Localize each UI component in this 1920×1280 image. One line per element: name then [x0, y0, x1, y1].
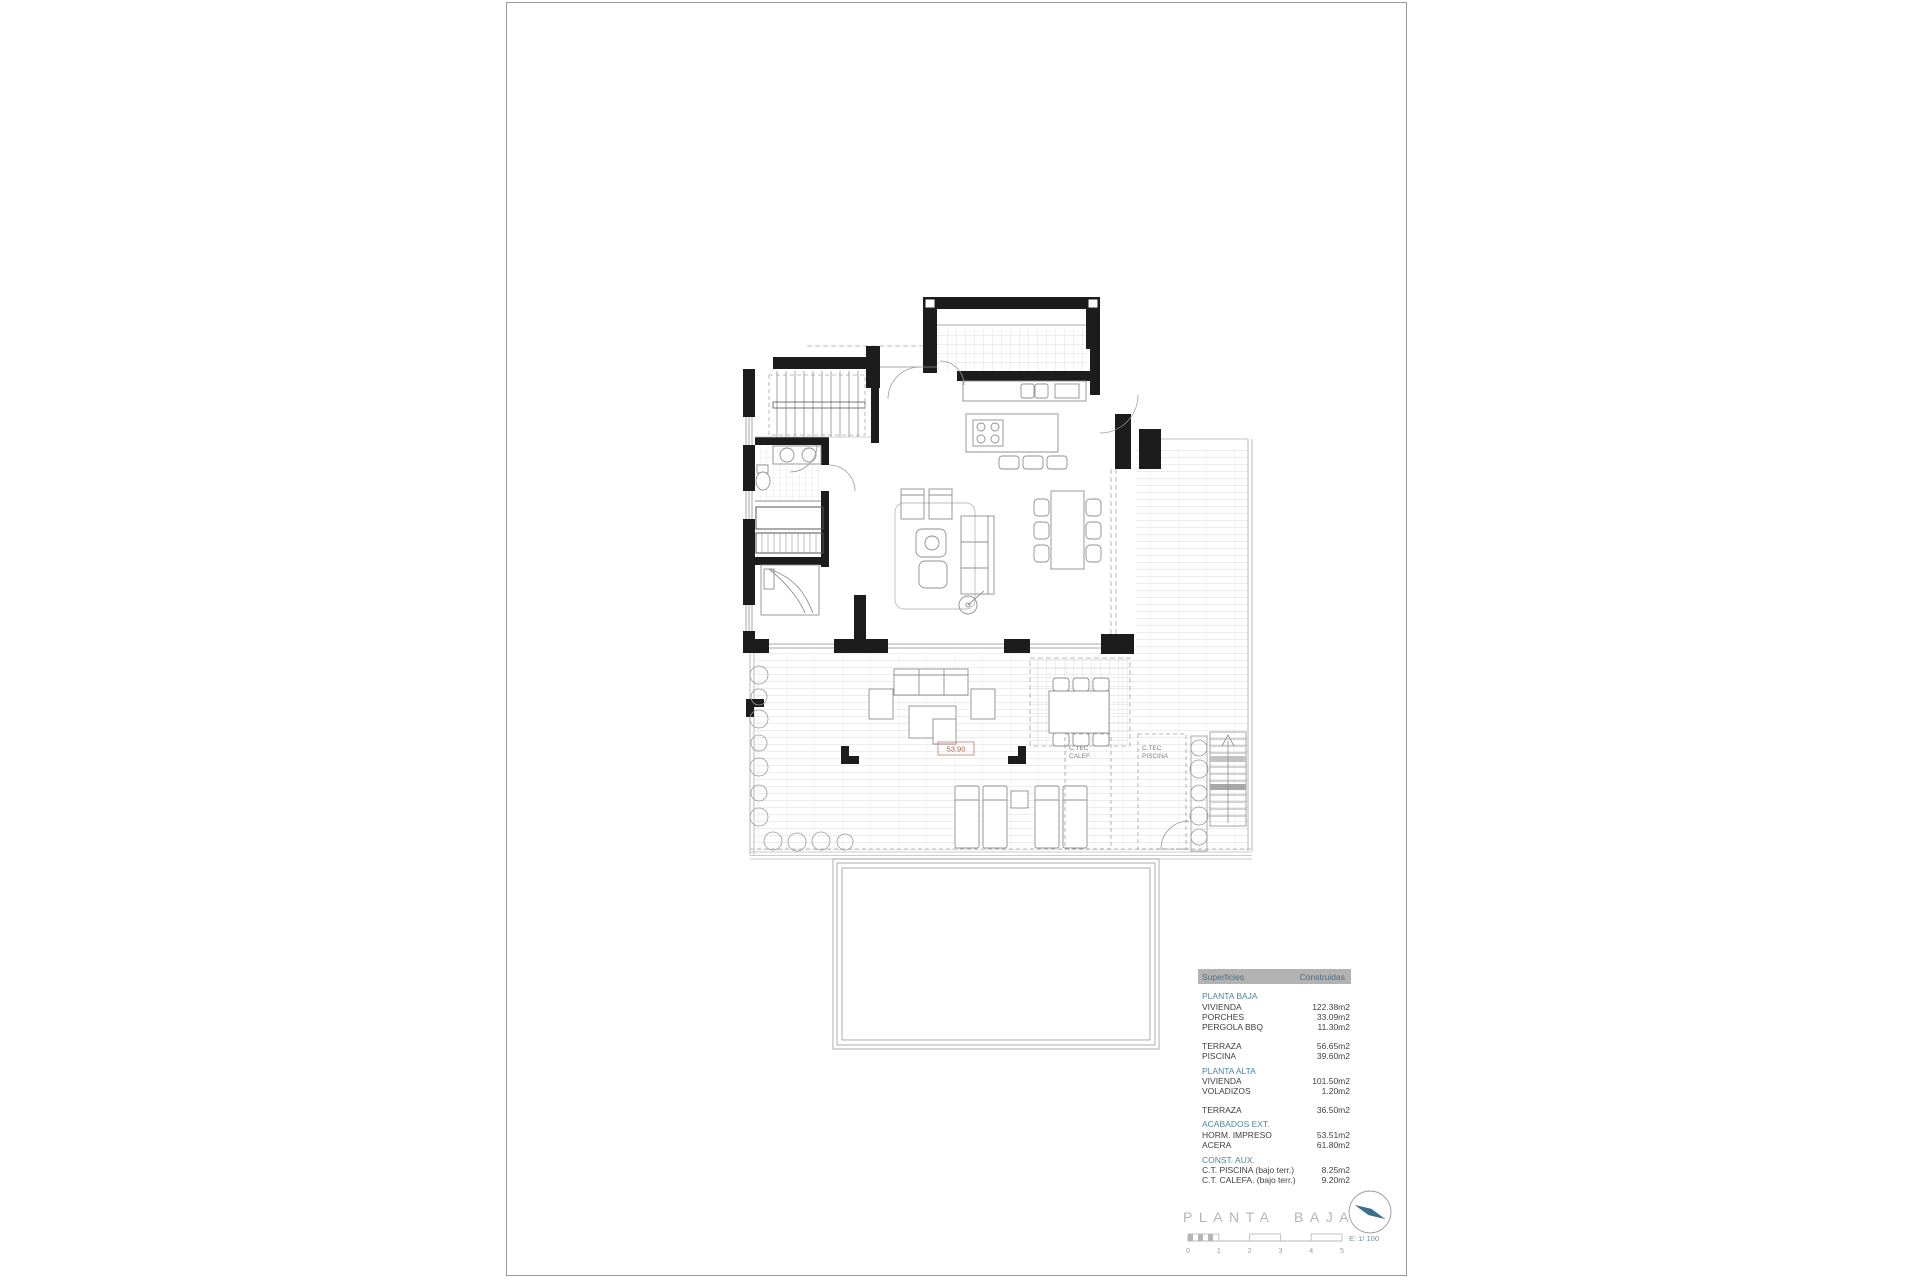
ct-piscina-label: C.TEC: [1142, 745, 1162, 752]
side-table: [933, 719, 956, 744]
pergola-dining: [1049, 678, 1109, 746]
table-row: TERRAZA36.50m2: [1198, 1105, 1351, 1115]
porch-area: [937, 325, 1086, 371]
table-row: PERGOLA BBQ11.30m2: [1198, 1022, 1351, 1032]
table-row: HORM. IMPRESO53.51m2: [1198, 1130, 1351, 1140]
table-row: VOLADIZOS1.20m2: [1198, 1086, 1351, 1096]
sink-icon: [802, 448, 816, 462]
chair-icon: [1086, 522, 1101, 539]
table-row: C.T. PISCINA (bajo terr.)8.25m2: [1198, 1165, 1351, 1175]
overhang-dashed-lines: [807, 346, 1116, 634]
staircase: [755, 371, 871, 437]
svg-text:2: 2: [1248, 1248, 1252, 1255]
chair-icon: [1034, 499, 1049, 516]
header-construidas: Construidas: [1300, 972, 1345, 982]
chair-icon: [1073, 678, 1089, 691]
chair-icon: [1093, 678, 1109, 691]
table-section: CONST. AUX.: [1198, 1155, 1351, 1166]
pool: [833, 859, 1159, 1049]
outdoor-chair-icon: [971, 689, 995, 719]
scale-bar: 0 1 2 3 4 5 E: 1/ 100: [1179, 1227, 1399, 1259]
svg-text:0: 0: [1186, 1248, 1190, 1255]
table-row: PISCINA39.60m2: [1198, 1051, 1351, 1061]
coffee-table: [916, 529, 946, 557]
areas-table-header: Superficies Construidas: [1198, 969, 1351, 984]
scale-tick-labels: 0 1 2 3 4 5: [1186, 1248, 1344, 1255]
svg-text:53.90: 53.90: [947, 745, 966, 754]
svg-text:1: 1: [1217, 1248, 1221, 1255]
chair-icon: [1034, 545, 1049, 562]
chair-icon: [1034, 522, 1049, 539]
armchair-icon: [901, 489, 924, 519]
table-section: PLANTA ALTA: [1198, 1066, 1351, 1077]
side-table: [1011, 791, 1028, 808]
table-row: TERRAZA56.65m2: [1198, 1041, 1351, 1051]
chair-icon: [1093, 733, 1109, 746]
table-row: VIVIENDA101.50m2: [1198, 1076, 1351, 1086]
living-room: [895, 489, 994, 614]
kitchen: [963, 381, 1086, 401]
stool-icon: [999, 456, 1019, 469]
kitchen-island: [966, 414, 1067, 469]
header-superficies: Superficies: [1202, 972, 1244, 982]
svg-text:CALEF.: CALEF.: [1069, 753, 1091, 760]
ct-calef-label: C.TEC: [1069, 745, 1089, 752]
entry-door-arc: [888, 367, 920, 399]
toilet-icon: [756, 472, 770, 490]
dining-table: [1051, 491, 1084, 569]
chair-icon: [1053, 733, 1069, 746]
svg-text:4: 4: [1309, 1248, 1313, 1255]
svg-text:PISCINA: PISCINA: [1142, 753, 1169, 760]
bbq-table: [1049, 691, 1109, 733]
svg-text:3: 3: [1278, 1248, 1282, 1255]
bathroom: [755, 445, 821, 501]
sun-lounger-icon: [955, 786, 979, 848]
areas-table: Superficies Construidas PLANTA BAJA VIVI…: [1198, 969, 1351, 1186]
cooker-icon: [1055, 384, 1079, 398]
sink-icon: [1035, 384, 1048, 398]
scale-ratio-label: E: 1/ 100: [1349, 1234, 1379, 1243]
chair-icon: [1053, 678, 1069, 691]
utility-room: [756, 507, 823, 553]
outdoor-chair-icon: [869, 689, 893, 719]
outdoor-sofa-icon: [894, 669, 968, 695]
sun-lounger-icon: [1035, 786, 1059, 848]
table-section: ACABADOS EXT.: [1198, 1119, 1351, 1130]
table-row: C.T. CALEFA. (bajo terr.)9.20m2: [1198, 1175, 1351, 1185]
coffee-table: [919, 561, 947, 588]
sink-icon: [780, 448, 794, 462]
dining-area: [1034, 491, 1101, 569]
chair-icon: [1086, 545, 1101, 562]
sun-lounger-icon: [1063, 786, 1087, 848]
sun-lounger-icon: [983, 786, 1007, 848]
bed: [761, 565, 819, 615]
drawing-sheet: C.TEC CALEF. C.TEC PISCINA 53.90: [506, 2, 1407, 1276]
table-section: PLANTA BAJA: [1198, 991, 1351, 1002]
table-row: PORCHES33.09m2: [1198, 1012, 1351, 1022]
hob-icon: [973, 420, 1003, 446]
chair-icon: [1086, 499, 1101, 516]
sink-icon: [1021, 384, 1034, 398]
screenshot-root: { "plan": { "labels": { "ct_calef_line1"…: [0, 0, 1920, 1280]
sofa-icon: [961, 516, 994, 594]
svg-text:5: 5: [1340, 1248, 1344, 1255]
stool-icon: [1023, 456, 1043, 469]
table-row: VIVIENDA122.38m2: [1198, 1002, 1351, 1012]
table-row: ACERA61.80m2: [1198, 1140, 1351, 1150]
armchair-icon: [929, 489, 952, 519]
stool-icon: [1047, 456, 1067, 469]
